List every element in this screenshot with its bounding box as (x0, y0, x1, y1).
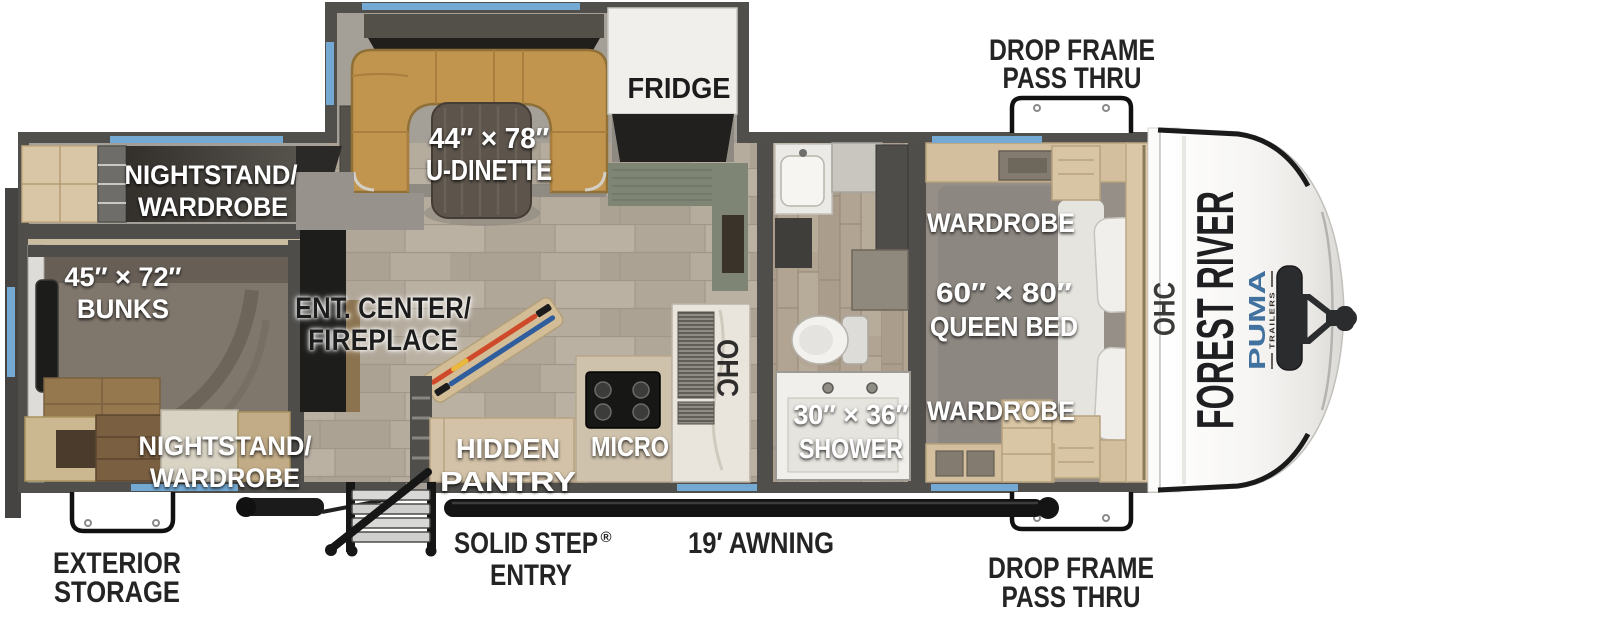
svg-text:WARDROBE: WARDROBE (927, 396, 1075, 426)
svg-text:PANTRY: PANTRY (440, 466, 576, 497)
svg-text:45″ × 72″: 45″ × 72″ (65, 262, 182, 292)
svg-text:19′ AWNING: 19′ AWNING (688, 527, 834, 560)
svg-text:WARDROBE: WARDROBE (150, 463, 300, 493)
svg-text:OHC: OHC (1149, 282, 1182, 336)
svg-text:U-DINETTE: U-DINETTE (426, 155, 552, 187)
svg-text:TRAILERS: TRAILERS (1268, 291, 1277, 349)
svg-text:44″ × 78″: 44″ × 78″ (429, 123, 549, 155)
svg-text:PASS THRU: PASS THRU (1002, 581, 1141, 614)
svg-text:MICRO: MICRO (591, 431, 669, 462)
svg-text:HIDDEN: HIDDEN (456, 433, 560, 464)
svg-text:30″ × 36″: 30″ × 36″ (794, 399, 909, 430)
svg-text:NIGHTSTAND/: NIGHTSTAND/ (125, 160, 298, 190)
svg-text:NIGHTSTAND/: NIGHTSTAND/ (139, 431, 312, 461)
svg-text:®: ® (600, 529, 611, 546)
svg-text:STORAGE: STORAGE (54, 576, 180, 609)
svg-text:QUEEN BED: QUEEN BED (930, 311, 1078, 342)
svg-text:WARDROBE: WARDROBE (138, 192, 288, 222)
svg-text:FRIDGE: FRIDGE (628, 73, 731, 105)
svg-text:PUMA: PUMA (1244, 270, 1270, 370)
svg-text:ENT. CENTER/: ENT. CENTER/ (295, 292, 472, 325)
svg-text:60″ × 80″: 60″ × 80″ (936, 277, 1072, 308)
svg-text:FOREST RIVER: FOREST RIVER (1187, 191, 1245, 429)
svg-text:WARDROBE: WARDROBE (927, 208, 1075, 238)
svg-text:SHOWER: SHOWER (799, 433, 903, 464)
svg-text:ENTRY: ENTRY (490, 559, 572, 592)
svg-text:SOLID STEP: SOLID STEP (454, 527, 598, 560)
svg-text:BUNKS: BUNKS (77, 294, 169, 324)
svg-text:FIREPLACE: FIREPLACE (308, 324, 458, 357)
svg-text:PASS THRU: PASS THRU (1003, 62, 1142, 95)
svg-text:OHC: OHC (711, 339, 744, 397)
